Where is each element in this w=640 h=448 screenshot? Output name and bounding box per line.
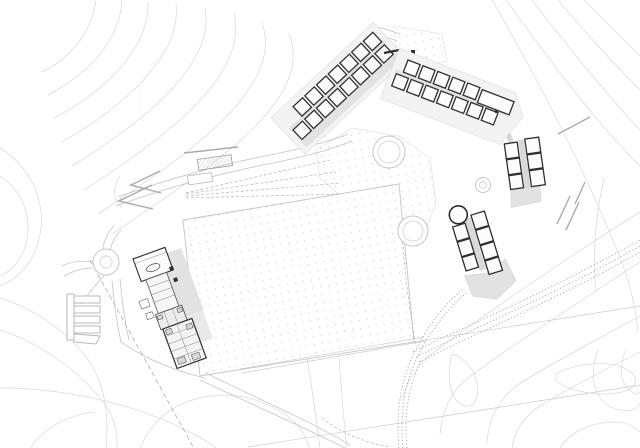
roundabout (93, 249, 119, 275)
unit (485, 257, 502, 274)
parking-bay (74, 334, 100, 344)
west-road-edge (112, 281, 121, 342)
dotted-road-band (419, 252, 640, 362)
unit (507, 158, 522, 175)
contour-line (0, 330, 117, 448)
contour-line (593, 350, 640, 411)
roundabout-approach (64, 268, 93, 276)
footbridge-deck (197, 155, 232, 171)
planter-ring (398, 216, 428, 246)
cluster-north-chain (380, 48, 530, 149)
contour-line (139, 58, 158, 122)
west-road-edge (120, 279, 129, 340)
contour-line (114, 176, 122, 208)
wall-stub (495, 110, 498, 113)
unit (525, 137, 541, 154)
long-straight-line (248, 385, 640, 447)
unit (527, 153, 543, 170)
footbridge-landing (188, 173, 213, 185)
corner-dashed-path (322, 418, 390, 447)
cluster-east-upper (502, 137, 548, 208)
contour-line (140, 395, 309, 448)
dotted-road-band (413, 240, 640, 352)
parking-bay (74, 326, 100, 333)
contour-line (402, 212, 640, 400)
contour-line (0, 388, 216, 448)
parking-spine (67, 294, 74, 340)
slope-wall-bar (558, 117, 590, 134)
contour-line (62, 4, 176, 142)
contour-line (594, 178, 604, 290)
site-plan-canvas (0, 0, 640, 448)
roundabout-approach (110, 230, 121, 250)
contour-line (0, 148, 41, 286)
slope-tick (575, 182, 585, 204)
contour-line (449, 354, 478, 406)
central-field (183, 184, 426, 376)
contour-line (0, 176, 28, 276)
contour-line (112, 34, 293, 234)
unit (504, 142, 519, 159)
planter-ring (476, 178, 491, 193)
contour-line (48, 0, 122, 95)
roundabout-outer-ring (93, 249, 119, 275)
contour-line (560, 422, 640, 448)
unit (509, 174, 524, 190)
side-wing (139, 298, 150, 309)
roundabout-approach (103, 226, 114, 249)
slope-tick (557, 196, 570, 224)
contour-line (487, 316, 640, 444)
contour-line (558, 0, 640, 90)
contour-line (532, 0, 640, 130)
footbridge (185, 155, 234, 185)
unit (529, 169, 545, 187)
parking-bay (74, 296, 100, 303)
roundabout-approach (62, 261, 93, 266)
site-plan-page (0, 0, 640, 448)
parking-comb (67, 294, 100, 344)
side-wing (146, 312, 155, 320)
contour-line (54, 2, 148, 118)
ramp-sightline (186, 183, 340, 196)
contour-line (42, 0, 96, 72)
parking-bay (74, 316, 100, 323)
contour-line (72, 8, 206, 166)
slope-tick (566, 202, 579, 230)
contour-line (30, 412, 94, 448)
contour-line (584, 0, 640, 56)
cluster-east-lower (444, 196, 519, 307)
parking-bay (74, 306, 100, 313)
field-south-road (200, 380, 345, 448)
